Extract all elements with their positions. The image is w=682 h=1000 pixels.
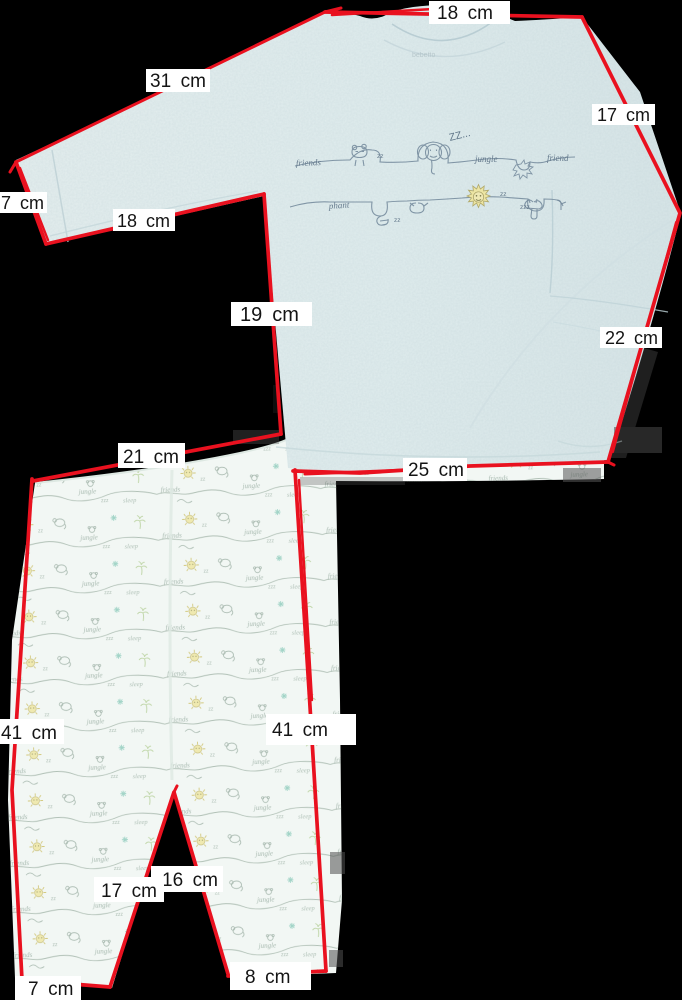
svg-text:zz: zz xyxy=(377,153,384,160)
svg-text:zz: zz xyxy=(500,191,507,198)
svg-text:zz: zz xyxy=(394,217,401,224)
svg-text:phant: phant xyxy=(327,200,350,212)
svg-text:17 cm: 17 cm xyxy=(101,881,157,902)
svg-text:41 cm: 41 cm xyxy=(1,723,57,744)
svg-text:22 cm: 22 cm xyxy=(605,328,658,348)
svg-text:bebetto: bebetto xyxy=(412,52,435,59)
svg-text:7 cm: 7 cm xyxy=(28,979,73,1000)
svg-text:31 cm: 31 cm xyxy=(150,71,206,92)
svg-text:8 cm: 8 cm xyxy=(245,967,290,988)
svg-text:16 cm: 16 cm xyxy=(162,870,218,891)
svg-text:21 cm: 21 cm xyxy=(123,447,179,468)
svg-text:25 cm: 25 cm xyxy=(408,460,464,481)
svg-text:18 cm: 18 cm xyxy=(437,3,493,24)
svg-text:18 cm: 18 cm xyxy=(117,211,170,231)
svg-text:7 cm: 7 cm xyxy=(1,193,44,213)
svg-text:19 cm: 19 cm xyxy=(240,304,299,326)
svg-text:friends: friends xyxy=(296,157,322,168)
svg-text:friend: friend xyxy=(547,153,569,163)
svg-text:17 cm: 17 cm xyxy=(597,105,650,125)
svg-text:jungle: jungle xyxy=(474,154,498,164)
svg-text:zzz: zzz xyxy=(520,204,530,211)
svg-text:41 cm: 41 cm xyxy=(272,720,328,741)
